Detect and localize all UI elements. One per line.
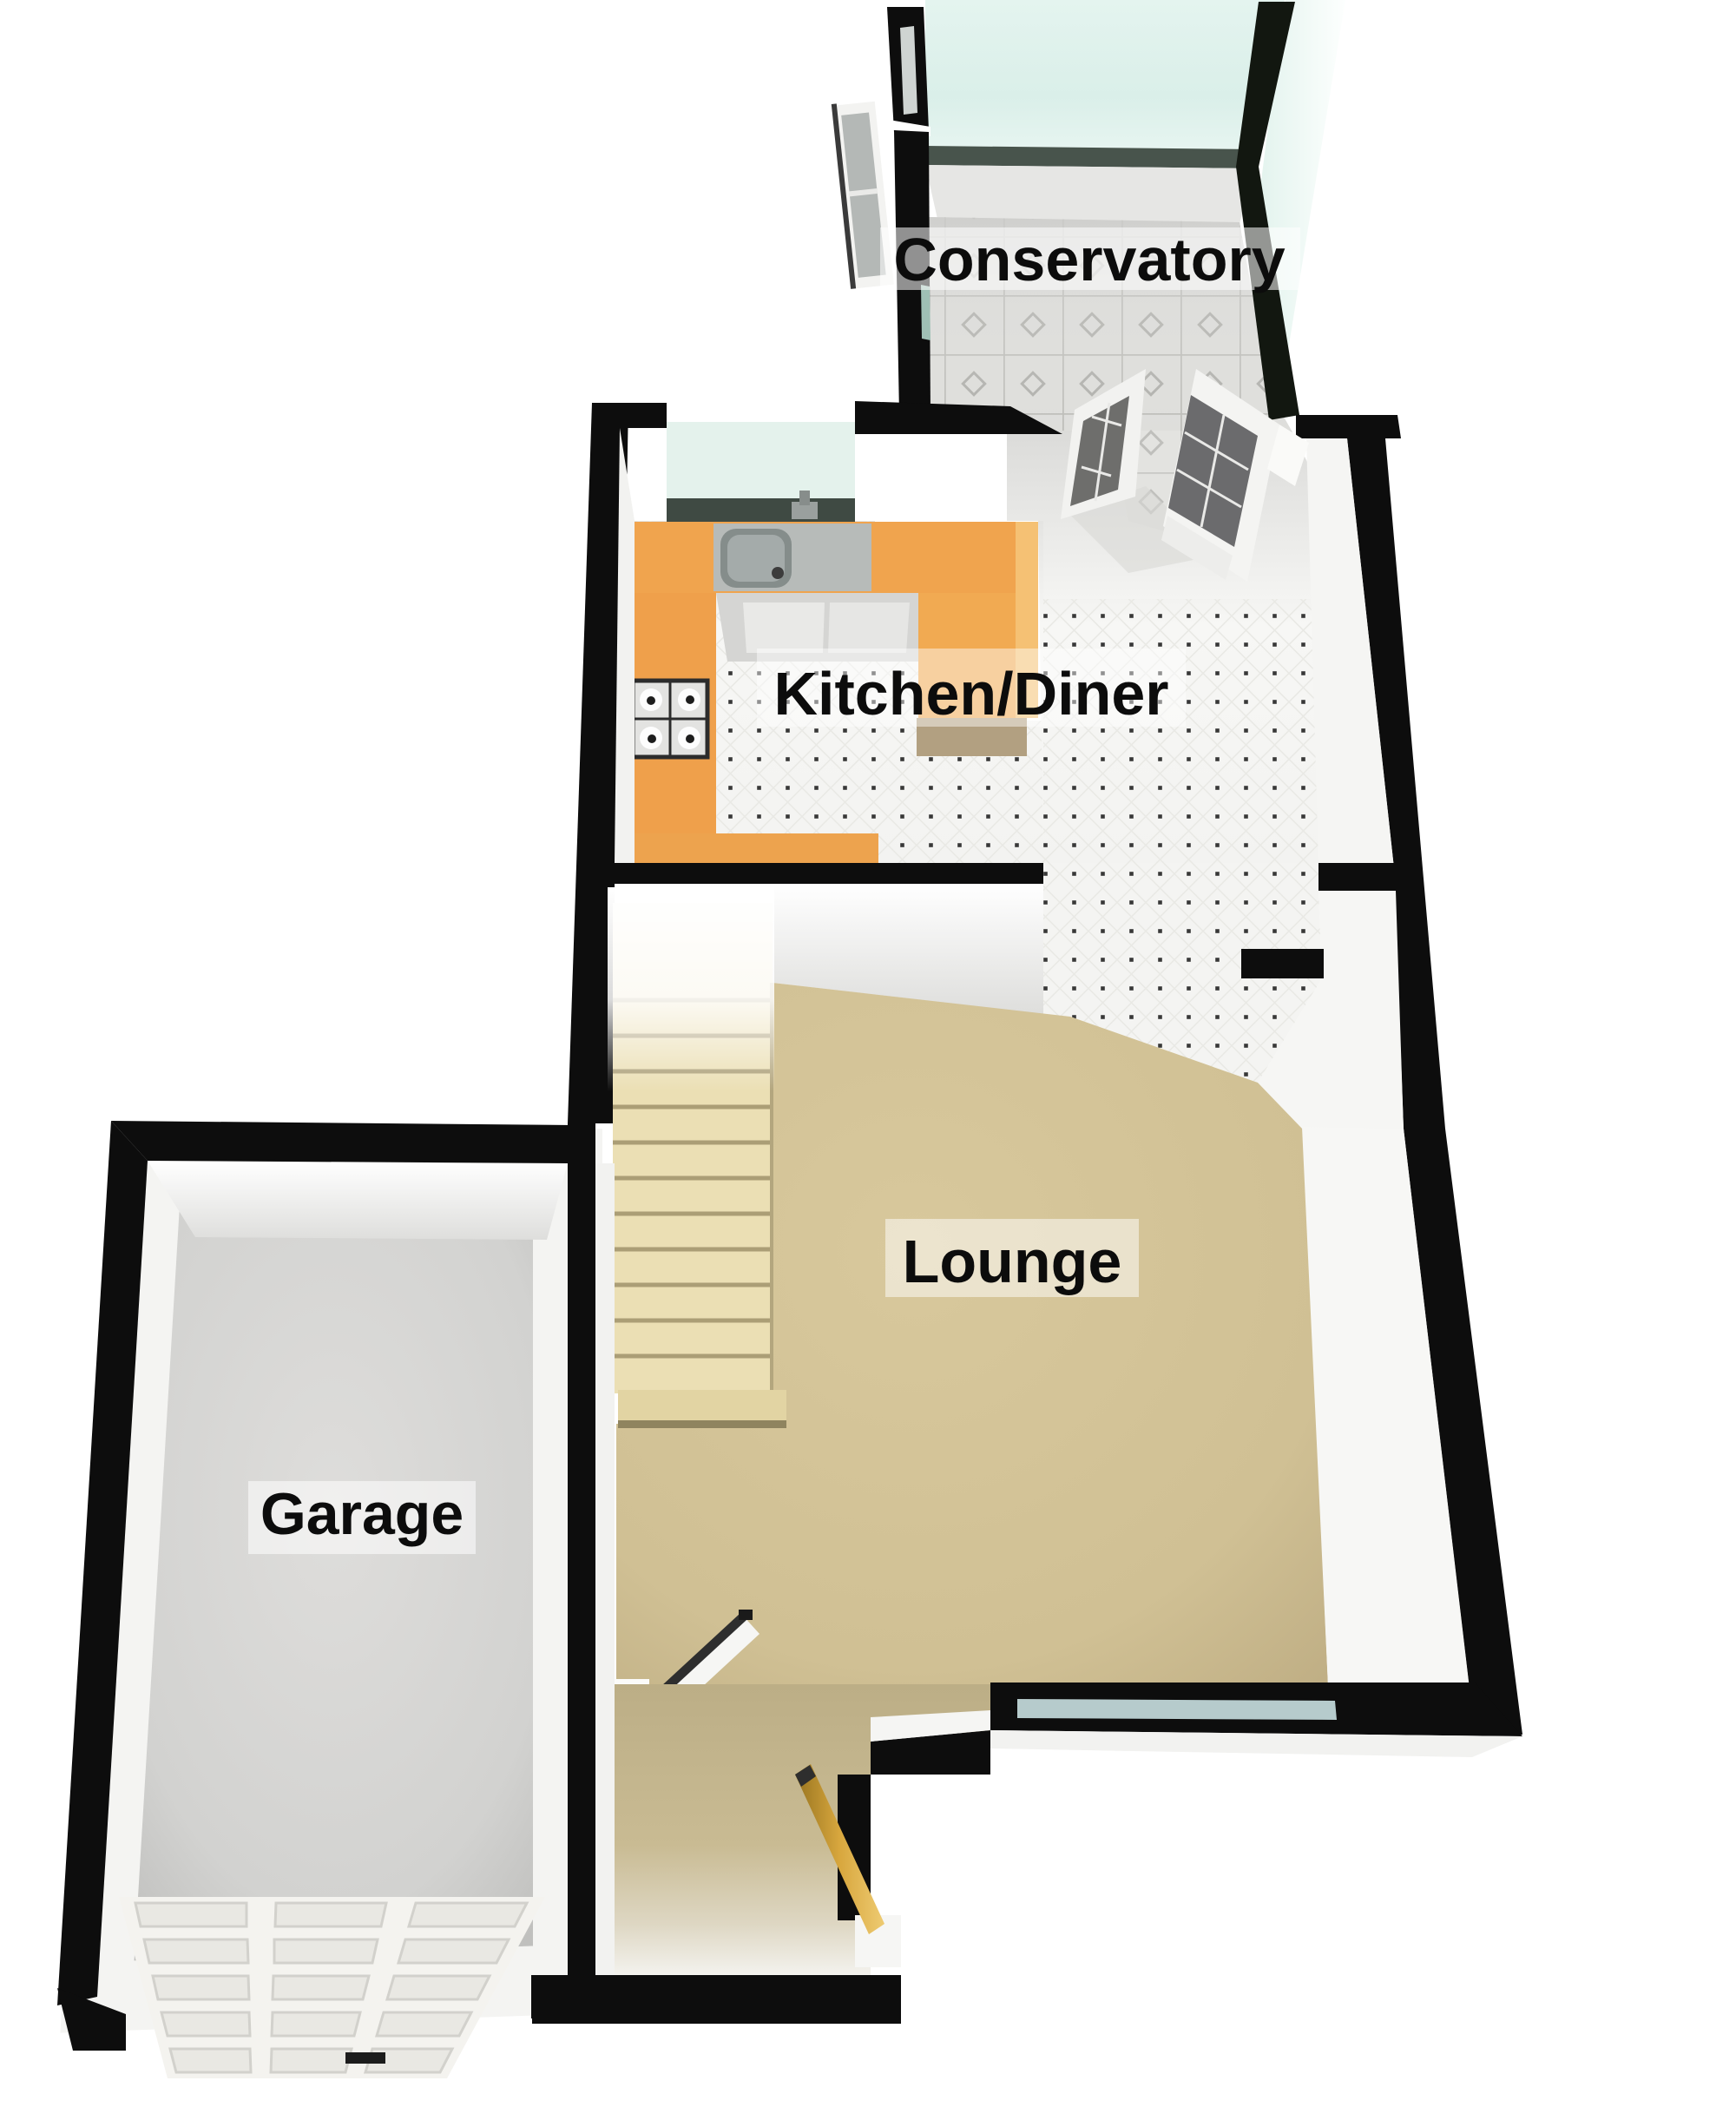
svg-text:Lounge: Lounge: [903, 1228, 1122, 1295]
svg-text:Conservatory: Conservatory: [893, 226, 1285, 293]
svg-text:Garage: Garage: [260, 1481, 464, 1547]
svg-text:Kitchen/Diner: Kitchen/Diner: [773, 660, 1168, 728]
